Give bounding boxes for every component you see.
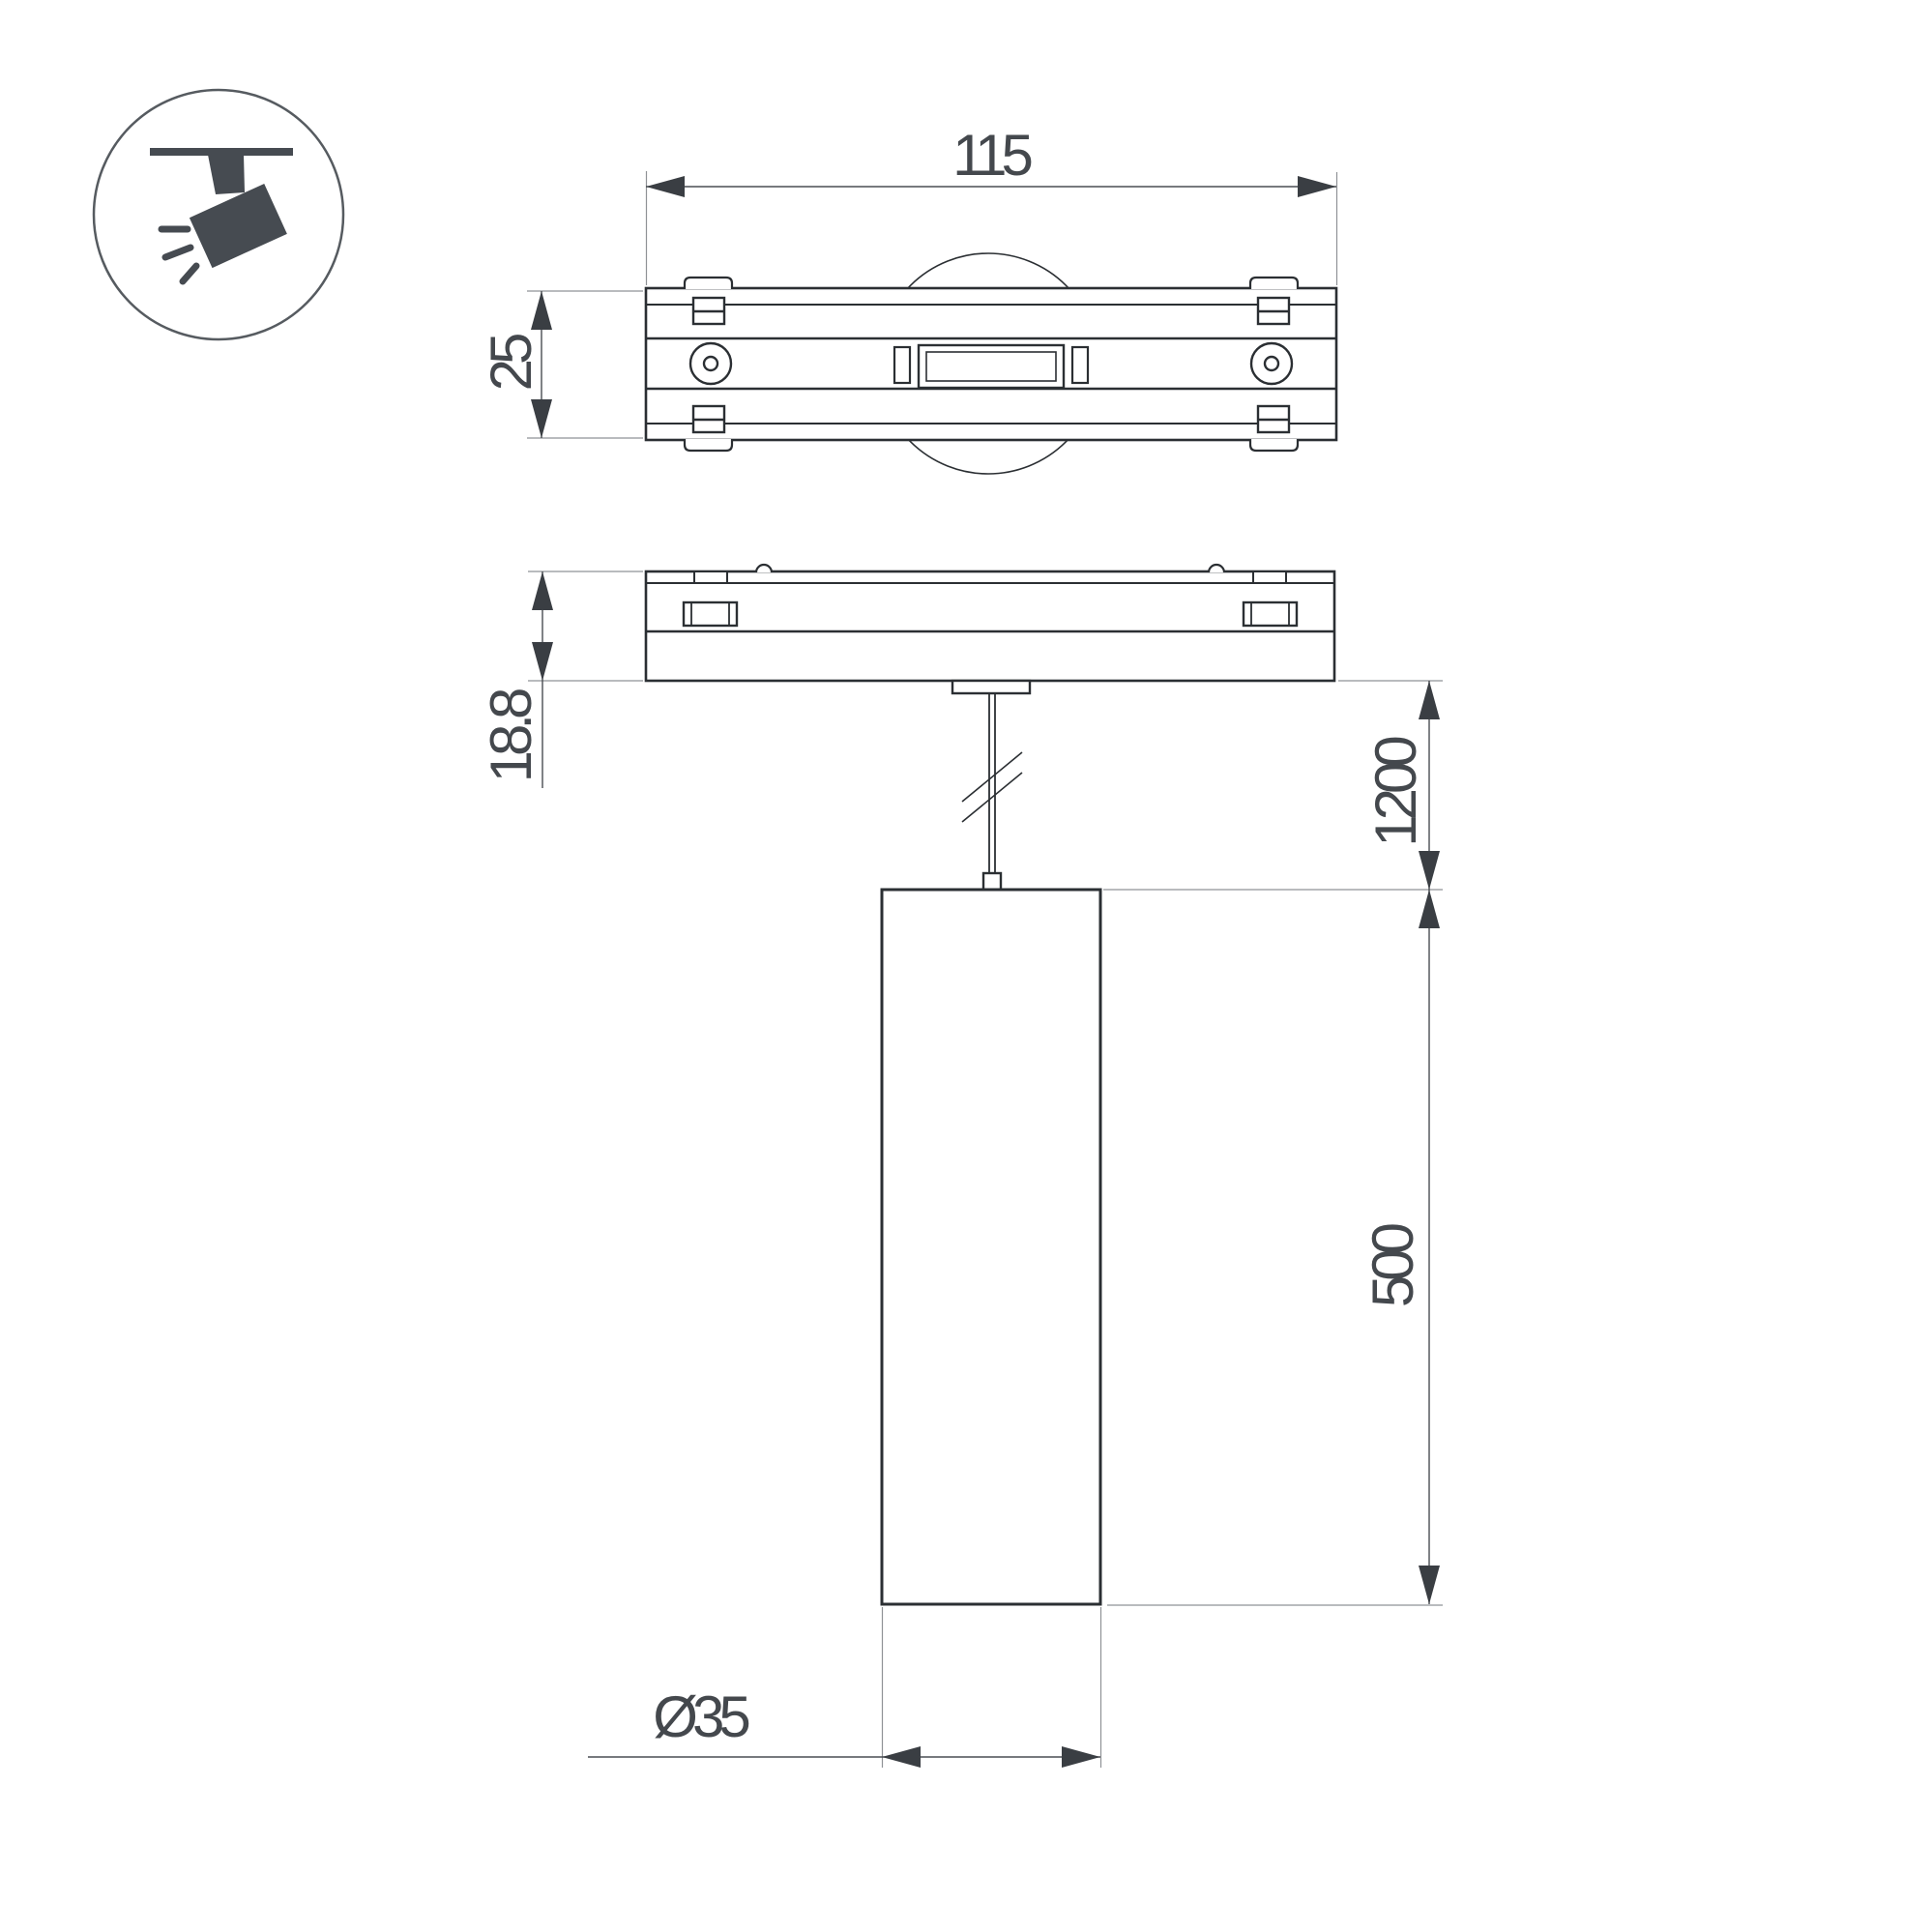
cylinder [882,890,1100,1604]
drawing-canvas: 115 25 [0,0,1932,1932]
arrow-right [1298,176,1336,197]
dim-label-diameter: Ø35 [653,1684,748,1749]
arrow-up [532,571,553,610]
track-spotlight-icon [94,90,343,339]
arrow-up [531,291,552,330]
suspension-plate [952,681,1030,693]
arrow-down [531,399,552,438]
arrow-down [1419,851,1440,890]
icon-ceiling-bar [150,148,293,156]
dim-label-25: 25 [479,335,543,391]
cable-break-symbol [962,752,1022,822]
dim-body-height: 500 [1107,890,1443,1605]
technical-drawing: 115 25 [0,0,1932,1932]
dim-label-1200: 1200 [1363,737,1428,847]
arrow-up [1419,890,1440,928]
dim-track-depth: 25 [479,291,643,438]
arrow-down [532,642,553,681]
arrow-right [1062,1746,1100,1768]
arrow-up [1419,681,1440,719]
dim-label-18-8: 18.8 [479,689,543,782]
dim-label-115: 115 [952,123,1031,188]
contact-slot [894,345,1088,388]
dim-adapter-height: 18.8 [479,571,643,788]
suspension-cable [989,693,995,873]
dim-suspension-length: 1200 [1103,681,1443,890]
arrow-left [646,176,685,197]
track-side-view: 18.8 [479,565,1334,890]
dim-label-500: 500 [1361,1223,1425,1307]
arrow-down [1419,1566,1440,1604]
cable-gripper [983,873,1001,890]
dim-body-diameter: Ø35 [588,1607,1101,1768]
pendant-body [882,890,1100,1604]
track-top-view: 115 25 [479,123,1337,474]
arrow-left [882,1746,921,1768]
adapter-body-side [646,571,1334,681]
